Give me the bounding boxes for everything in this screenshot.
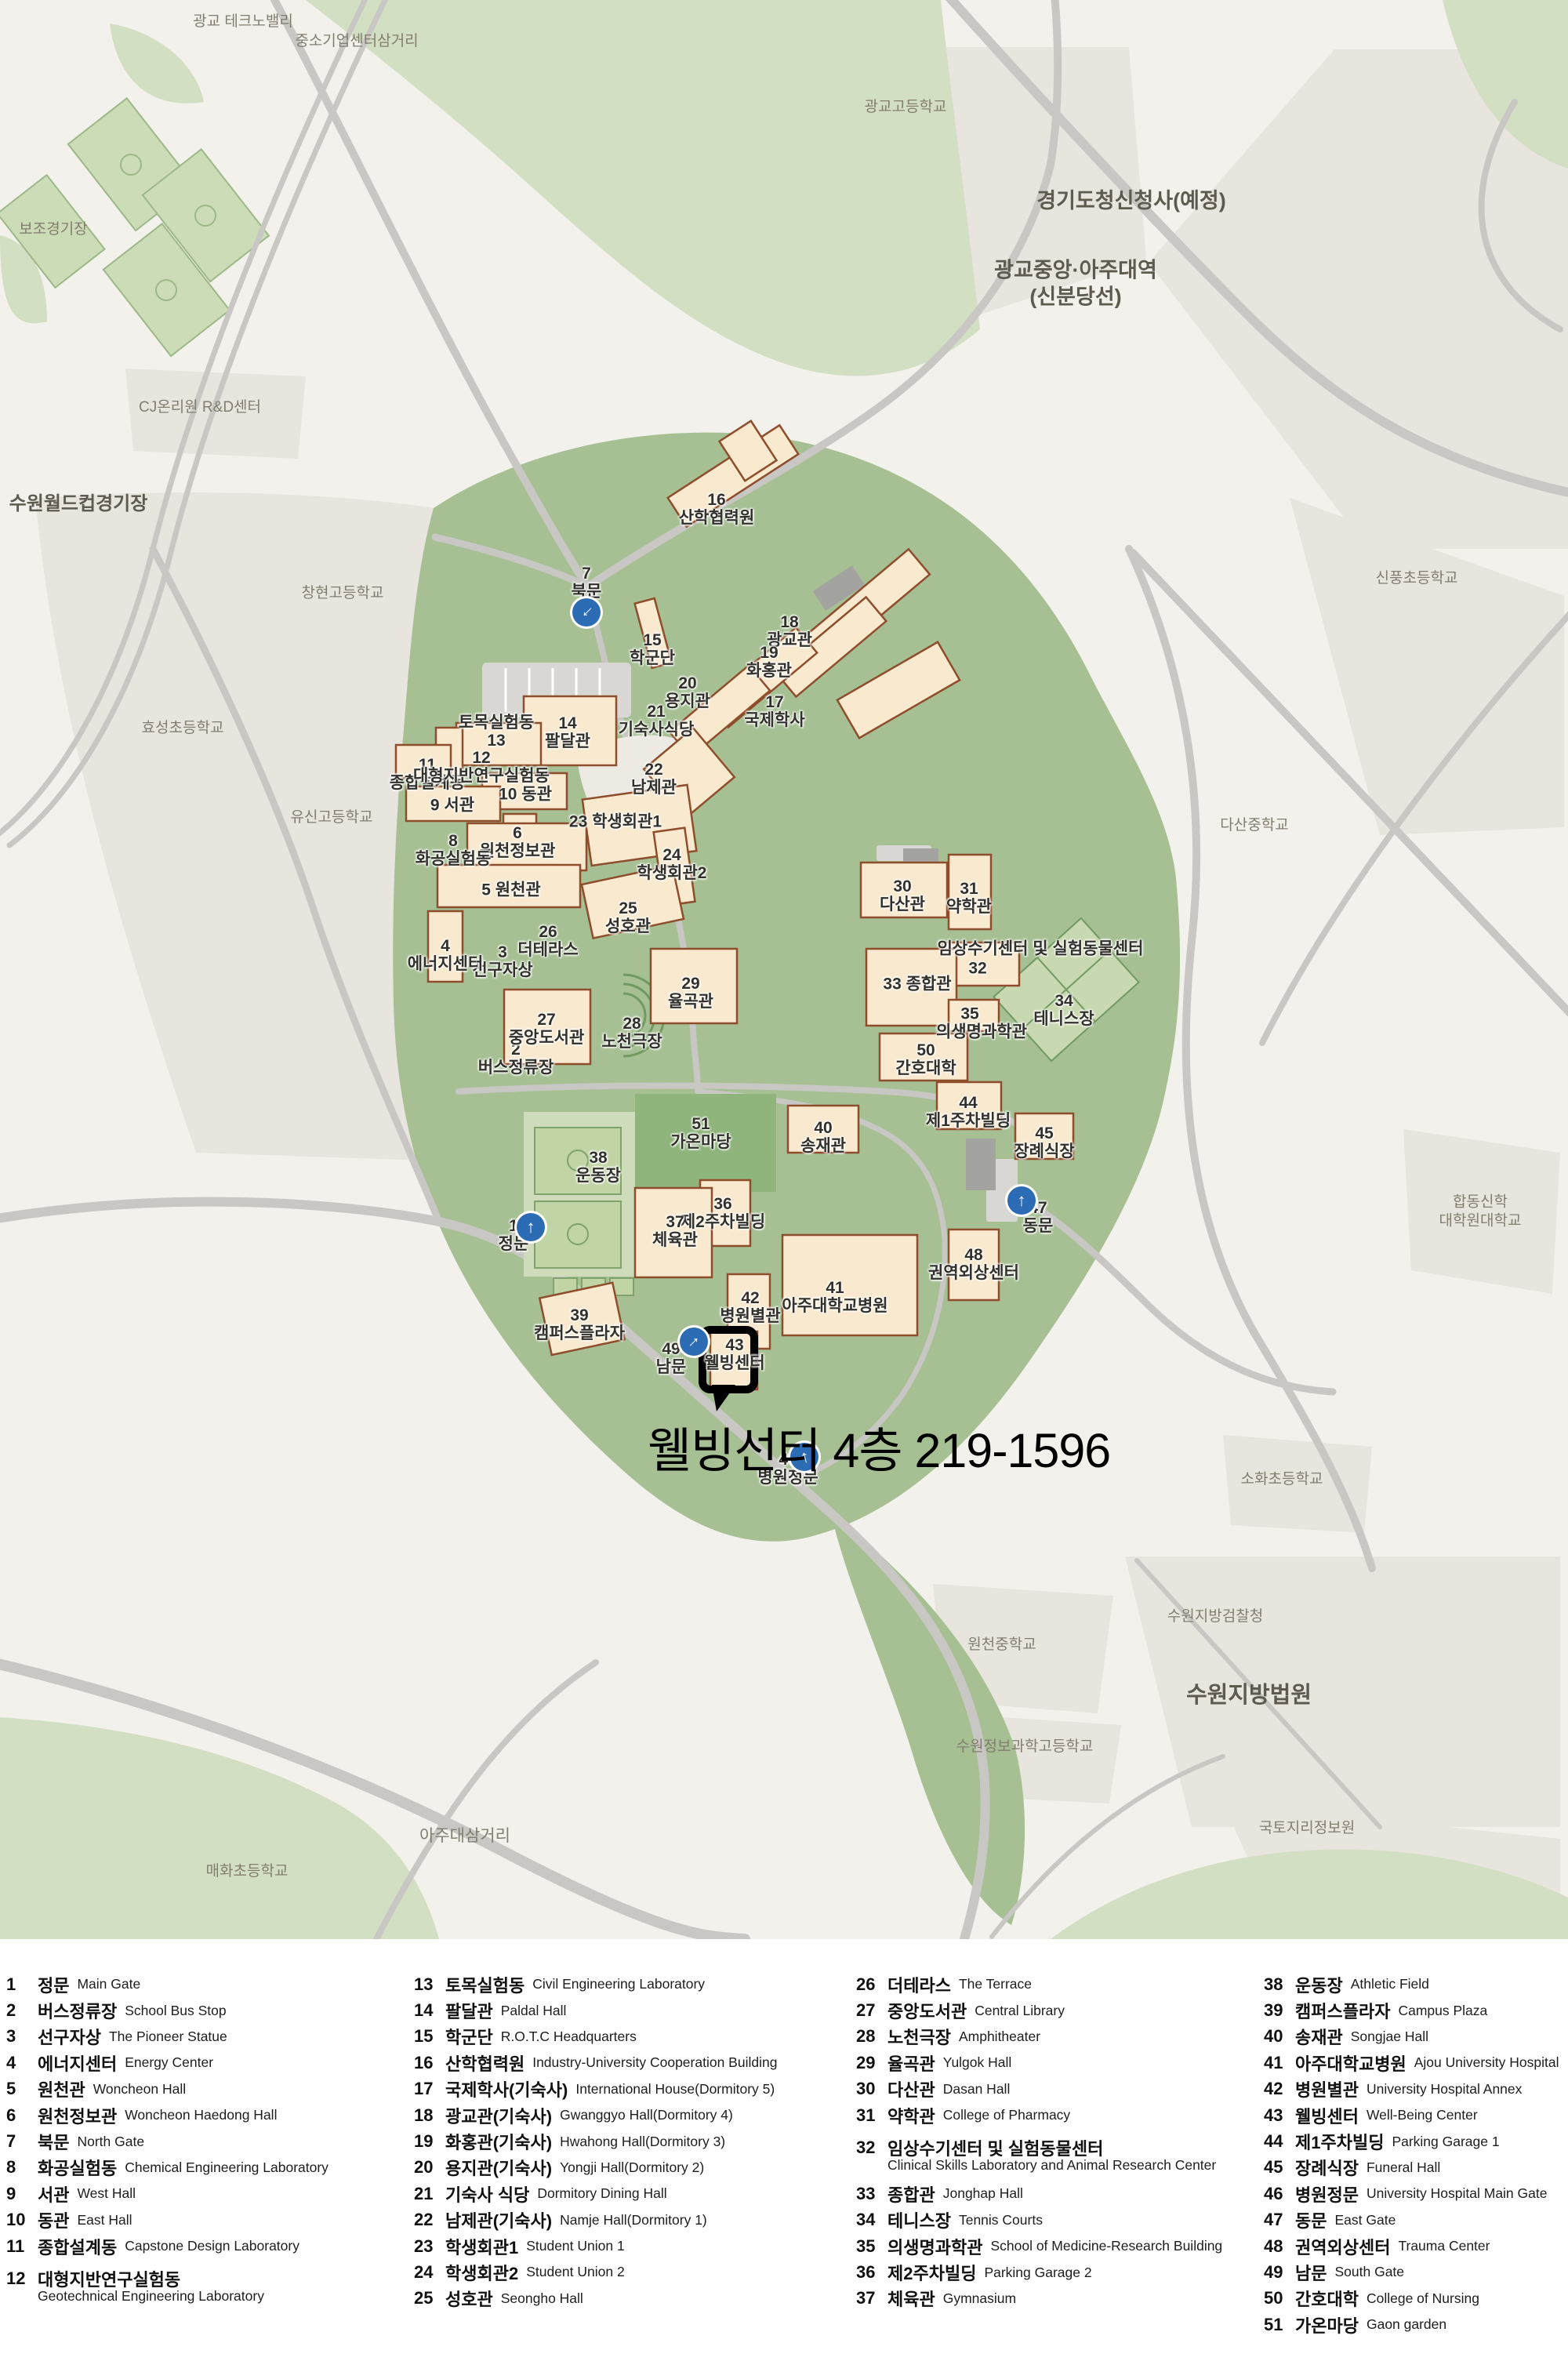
legend-item: 40송재관Songjae Hall [1264, 2024, 1559, 2050]
legend-item-korean-name: 북문 [38, 2129, 69, 2154]
legend-item-english-name: Namje Hall(Dormitory 1) [560, 2212, 707, 2228]
legend-item-korean-name: 화공실험동 [38, 2155, 117, 2180]
legend-item-number: 4 [6, 2053, 38, 2073]
legend-item-english-name: College of Pharmacy [943, 2107, 1070, 2123]
legend-item-number: 23 [414, 2236, 445, 2257]
map-building-label: 토목실험동13 [459, 714, 535, 750]
legend-item-korean-name: 광교관(기숙사) [445, 2103, 552, 2128]
legend-item-korean-name: 선구자상 [38, 2024, 101, 2049]
map-building-label: 5 원천관 [481, 881, 540, 899]
legend-item: 11종합설계동Capstone Design Laboratory [6, 2233, 446, 2259]
legend-item-number: 49 [1264, 2262, 1295, 2283]
legend-item: 17국제학사(기숙사)International House(Dormitory… [414, 2076, 777, 2102]
legend-item-english-name: Central Library [975, 2003, 1065, 2019]
legend-item-korean-name: 테니스장 [887, 2207, 951, 2232]
legend-item-english-name: South Gate [1334, 2264, 1404, 2280]
map-building-label: 10 동관 [499, 785, 552, 803]
legend-item: 1정문Main Gate [6, 1971, 446, 1997]
legend-item-number: 3 [6, 2026, 38, 2047]
place-label: 광교중앙·아주대역(신분당선) [994, 257, 1157, 311]
map-building-label: 4에너지센터 [408, 937, 484, 973]
place-label: 국토지리정보원 [1259, 1819, 1355, 1838]
legend-item-number: 17 [414, 2079, 445, 2099]
legend-item-english-name: Chemical Engineering Laboratory [125, 2159, 328, 2176]
legend-item-english-name: Paldal Hall [501, 2003, 567, 2019]
legend-item-korean-name: 학생회관1 [445, 2234, 518, 2259]
place-label: 소화초등학교 [1241, 1470, 1323, 1489]
legend-item-english-name: Athletic Field [1351, 1976, 1429, 1992]
map-building-label: 14팔달관 [545, 714, 590, 750]
map-building-label: 16산학협력원 [679, 491, 755, 527]
map-building-label: 26더테라스 [517, 923, 578, 959]
gate-arrow-icon: ↑ [684, 1332, 702, 1350]
legend-item: 21기숙사 식당Dormitory Dining Hall [414, 2181, 777, 2207]
legend-item-korean-name: 국제학사(기숙사) [445, 2076, 568, 2101]
gate-arrow-icon: ↑ [527, 1219, 535, 1236]
legend-item-korean-name: 권역외상센터 [1295, 2234, 1390, 2259]
legend-item-number: 5 [6, 2079, 38, 2099]
legend-item-korean-name: 종합설계동 [38, 2234, 117, 2259]
map-building-label: 의생명과학관 [936, 1022, 1027, 1041]
map-building-label: 28노천극장 [601, 1015, 662, 1051]
place-label: CJ온리원 R&D센터 [139, 398, 261, 417]
legend-item-english-name: Industry-University Cooperation Building [532, 2054, 777, 2071]
map-building-label: 임상수기센터 및 실험동물센터 [938, 939, 1144, 957]
legend-item-korean-name: 웰빙센터 [1295, 2103, 1359, 2128]
legend-item-number: 43 [1264, 2105, 1295, 2126]
map-building-label: 42병원별관 [720, 1289, 780, 1325]
legend-item: 5원천관Woncheon Hall [6, 2076, 446, 2102]
legend-item-korean-name: 노천극장 [887, 2024, 951, 2049]
place-label: 원천중학교 [967, 1636, 1036, 1655]
map-building-label: 38운동장 [575, 1149, 621, 1185]
legend-item-korean-name: 원천관 [38, 2076, 85, 2101]
legend-item-english-name: Well-Being Center [1367, 2107, 1478, 2123]
legend-item-korean-name: 제1주차빌딩 [1295, 2129, 1384, 2154]
legend-item-number: 21 [414, 2184, 445, 2204]
map-building-label: 25성호관 [605, 899, 651, 935]
legend-item-number: 35 [856, 2236, 887, 2257]
legend-item-number: 37 [856, 2288, 887, 2308]
legend-item-number: 24 [414, 2262, 445, 2283]
legend-item-number: 16 [414, 2053, 445, 2073]
legend-item-number: 44 [1264, 2131, 1295, 2152]
legend-item-korean-name: 병원별관 [1295, 2076, 1359, 2101]
legend-item-english-name: International House(Dormitory 5) [575, 2081, 775, 2098]
legend-item-number: 19 [414, 2131, 445, 2152]
legend-item-english-name: Energy Center [125, 2054, 213, 2071]
legend-item-english-name: R.O.T.C Headquarters [501, 2029, 637, 2045]
legend-item-korean-name: 종합관 [887, 2181, 935, 2207]
legend-item: 44제1주차빌딩Parking Garage 1 [1264, 2128, 1559, 2154]
legend-item-korean-name: 동관 [38, 2207, 69, 2232]
legend-item-english-name: Yongji Hall(Dormitory 2) [560, 2159, 704, 2176]
map-building-label: 17국제학사 [744, 693, 804, 729]
legend-item: 12대형지반연구실험동Geotechnical Engineering Labo… [6, 2259, 446, 2312]
place-label: 보조경기장 [19, 220, 87, 239]
north-gate-arrow: ↑ [572, 598, 601, 627]
legend-item: 18광교관(기숙사)Gwanggyo Hall(Dormitory 4) [414, 2102, 777, 2128]
map-building-label: 27중앙도서관 [509, 1011, 585, 1047]
legend-item-english-name: Seongho Hall [501, 2290, 583, 2307]
legend-item-number: 47 [1264, 2210, 1295, 2230]
legend-item-korean-name: 기숙사 식당 [445, 2181, 529, 2207]
legend-item-english-name: Ajou University Hospital [1414, 2054, 1559, 2071]
map-building-label: 39캠퍼스플라자 [534, 1306, 625, 1342]
legend-item-korean-name: 남문 [1295, 2260, 1327, 2285]
legend-item-korean-name: 원천정보관 [38, 2103, 117, 2128]
map-building-label: 51가온마당 [670, 1115, 731, 1151]
legend-item-korean-name: 남제관(기숙사) [445, 2207, 552, 2232]
legend-item-number: 18 [414, 2105, 445, 2126]
legend-item-korean-name: 가온마당 [1295, 2312, 1359, 2337]
legend-item-english-name: Yulgok Hall [943, 2054, 1012, 2071]
legend-item: 9서관West Hall [6, 2181, 446, 2207]
legend-item-korean-name: 토목실험동 [445, 1972, 524, 1997]
legend-item-number: 32 [856, 2138, 887, 2158]
legend-item-english-name: College of Nursing [1367, 2290, 1479, 2307]
legend-item: 48권역외상센터Trauma Center [1264, 2233, 1559, 2259]
legend-item-number: 39 [1264, 2000, 1295, 2021]
legend-item-number: 33 [856, 2184, 887, 2204]
map-building-label: 9 서관 [430, 796, 474, 814]
map-building-label: 29율곡관 [668, 975, 713, 1011]
gate-arrow-icon: ↑ [1018, 1192, 1026, 1209]
legend-item: 15학군단R.O.T.C Headquarters [414, 2024, 777, 2050]
legend-item-english-name: Hwahong Hall(Dormitory 3) [560, 2134, 725, 2150]
legend-item-english-name: Campus Plaza [1398, 2003, 1487, 2019]
legend-item: 42병원별관University Hospital Annex [1264, 2076, 1559, 2102]
map-building-label: 19화홍관 [746, 644, 792, 680]
annotation-text: 웰빙선터 4층 219-1596 [648, 1411, 1110, 1481]
map-canvas [0, 0, 1568, 1939]
legend-item-korean-name: 장례식장 [1295, 2155, 1359, 2180]
campus-map: 1정문2버스정류장3선구자상4에너지센터5 원천관6원천정보관7북문8화공실험동… [0, 0, 1568, 1939]
legend-item-english-name: Capstone Design Laboratory [125, 2238, 299, 2254]
legend-item-korean-name: 아주대학교병원 [1295, 2050, 1406, 2076]
legend-item-korean-name: 화홍관(기숙사) [445, 2129, 552, 2154]
legend-item: 50간호대학College of Nursing [1264, 2286, 1559, 2312]
main-gate-arrow: ↑ [517, 1213, 545, 1241]
legend-item-english-name: Dormitory Dining Hall [537, 2185, 666, 2202]
map-building-label: 33 종합관 [883, 975, 951, 993]
legend-item-number: 9 [6, 2184, 38, 2204]
legend-column-2: 13토목실험동Civil Engineering Laboratory14팔달관… [414, 1971, 777, 2312]
legend-item-number: 10 [6, 2210, 38, 2230]
legend-item: 23학생회관1Student Union 1 [414, 2233, 777, 2259]
legend-item-english-name: Dasan Hall [943, 2081, 1011, 2098]
place-label: 신풍초등학교 [1376, 569, 1458, 588]
place-label: 합동신학대학원대학교 [1439, 1193, 1522, 1230]
map-building-label: 22남제관 [631, 761, 677, 797]
legend-item: 47동문East Gate [1264, 2207, 1559, 2233]
legend-item-english-name: Geotechnical Engineering Laboratory [38, 2288, 477, 2305]
map-building-label: 32 [968, 959, 986, 977]
legend-item-english-name: Jonghap Hall [943, 2185, 1023, 2202]
legend-item-english-name: Student Union 2 [526, 2264, 625, 2280]
legend-item-korean-name: 성호관 [445, 2286, 493, 2311]
legend-item: 22남제관(기숙사)Namje Hall(Dormitory 1) [414, 2207, 777, 2233]
legend-item-english-name: Gwanggyo Hall(Dormitory 4) [560, 2107, 733, 2123]
map-building-label: 34테니스장 [1033, 992, 1094, 1028]
legend-item: 14팔달관Paldal Hall [414, 1997, 777, 2023]
legend-item-number: 14 [414, 2000, 445, 2021]
legend-item-number: 28 [856, 2026, 887, 2047]
legend-item-korean-name: 캠퍼스플라자 [1295, 1998, 1390, 2023]
legend-item-english-name: East Hall [77, 2212, 132, 2228]
legend-item-number: 34 [856, 2210, 887, 2230]
legend-item-number: 1 [6, 1974, 38, 1995]
legend-item-korean-name: 약학관 [887, 2103, 935, 2128]
legend-item: 13토목실험동Civil Engineering Laboratory [414, 1971, 777, 1997]
legend-item: 4에너지센터Energy Center [6, 2050, 446, 2076]
map-building-label: 23 학생회관1 [569, 812, 662, 830]
legend-item-korean-name: 체육관 [887, 2286, 935, 2311]
gate-arrow-icon: ↑ [577, 603, 595, 621]
legend-item-korean-name: 송재관 [1295, 2024, 1343, 2049]
legend-item: 46병원정문University Hospital Main Gate [1264, 2181, 1559, 2207]
legend-item-number: 38 [1264, 1974, 1295, 1995]
map-building-label: 21기숙사식당 [619, 703, 695, 739]
legend-item-korean-name: 더테라스 [887, 1972, 951, 1997]
legend-item-english-name: Parking Garage 2 [984, 2265, 1091, 2281]
legend-item-korean-name: 정문 [38, 1972, 69, 1997]
place-label: 아주대삼거리 [419, 1826, 510, 1847]
legend-item-english-name: Gymnasium [943, 2290, 1016, 2307]
legend-item-english-name: University Hospital Main Gate [1367, 2185, 1548, 2202]
place-label: 수원지방법원 [1186, 1681, 1312, 1709]
legend-item-number: 8 [6, 2157, 38, 2178]
legend-item-english-name: West Hall [77, 2185, 136, 2202]
map-building-label: 45장례식장 [1014, 1124, 1074, 1161]
legend-item-english-name: Amphitheater [959, 2029, 1040, 2045]
legend-item-number: 7 [6, 2131, 38, 2152]
legend-item: 7북문North Gate [6, 2128, 446, 2154]
legend-item-english-name: Trauma Center [1398, 2238, 1490, 2254]
place-label: 경기도청신청사(예정) [1036, 188, 1226, 215]
map-building-label: 8화공실험동 [416, 832, 492, 868]
map-building-label: 7북문 [572, 565, 602, 601]
legend-item-korean-name: 에너지센터 [38, 2050, 117, 2076]
place-label: 중소기업센터삼거리 [295, 32, 418, 51]
legend-item-number: 40 [1264, 2026, 1295, 2047]
legend-item-korean-name: 중앙도서관 [887, 1998, 967, 2023]
legend-item-number: 11 [6, 2236, 38, 2257]
legend-item: 6원천정보관Woncheon Haedong Hall [6, 2102, 446, 2128]
legend-item-korean-name: 학생회관2 [445, 2260, 518, 2285]
legend-item-number: 13 [414, 1974, 445, 1995]
legend-item-korean-name: 산학협력원 [445, 2050, 524, 2076]
legend-item-number: 26 [856, 1974, 887, 1995]
legend-item-english-name: Student Union 1 [526, 2238, 625, 2254]
legend-item: 41아주대학교병원Ajou University Hospital [1264, 2050, 1559, 2076]
legend-column-4: 38운동장Athletic Field39캠퍼스플라자Campus Plaza4… [1264, 1971, 1559, 2337]
map-building-label: 44제1주차빌딩 [926, 1094, 1011, 1130]
place-label: 효성초등학교 [142, 719, 224, 738]
legend-item-number: 20 [414, 2157, 445, 2178]
place-label: 수원월드컵경기장 [9, 492, 148, 516]
legend-item-number: 6 [6, 2105, 38, 2126]
map-building-label: 48권역외상센터 [928, 1246, 1019, 1282]
legend-item-number: 41 [1264, 2053, 1295, 2073]
legend-item: 16산학협력원Industry-University Cooperation B… [414, 2050, 777, 2076]
legend-item-english-name: School of Medicine-Research Building [990, 2238, 1222, 2254]
legend-item-number: 30 [856, 2079, 887, 2099]
legend-item-english-name: East Gate [1334, 2212, 1396, 2228]
legend-item-korean-name: 팔달관 [445, 1998, 493, 2023]
legend-item-english-name: Woncheon Hall [93, 2081, 186, 2098]
legend-item-english-name: University Hospital Annex [1367, 2081, 1522, 2098]
legend-item: 38운동장Athletic Field [1264, 1971, 1559, 1997]
map-building-label: 15학군단 [630, 631, 675, 667]
map-building-label: 30다산관 [880, 877, 925, 914]
legend-item-number: 51 [1264, 2315, 1295, 2335]
place-label: 매화초등학교 [206, 1862, 289, 1881]
map-building-label: 31약학관 [946, 880, 992, 916]
legend-item: 49남문South Gate [1264, 2259, 1559, 2285]
place-label: 다산중학교 [1220, 816, 1288, 835]
map-building-label: 41아주대학교병원 [782, 1279, 887, 1315]
legend-item-number: 25 [414, 2288, 445, 2308]
place-label: 창현고등학교 [302, 584, 384, 603]
legend-item-english-name: Main Gate [77, 1976, 140, 1992]
legend-item-korean-name: 용지관(기숙사) [445, 2155, 552, 2180]
legend-item: 3선구자상The Pioneer Statue [6, 2024, 446, 2050]
legend-item-english-name: The Terrace [959, 1976, 1032, 1992]
place-label: 유신고등학교 [291, 808, 373, 827]
legend-item-number: 42 [1264, 2079, 1295, 2099]
legend-item: 39캠퍼스플라자Campus Plaza [1264, 1997, 1559, 2023]
east-gate-arrow: ↑ [1007, 1186, 1036, 1215]
legend-item-english-name: Gaon garden [1367, 2316, 1446, 2333]
legend-item-number: 27 [856, 2000, 887, 2021]
legend-item: 20용지관(기숙사)Yongji Hall(Dormitory 2) [414, 2155, 777, 2181]
legend-item-korean-name: 동문 [1295, 2207, 1327, 2232]
legend-item-number: 12 [6, 2268, 38, 2289]
map-building-label: 37체육관 [652, 1213, 698, 1249]
legend-item-korean-name: 의생명과학관 [887, 2234, 982, 2259]
legend-item-number: 29 [856, 2053, 887, 2073]
legend-item: 51가온마당Gaon garden [1264, 2312, 1559, 2337]
legend-item-korean-name: 서관 [38, 2181, 69, 2207]
legend-item-number: 15 [414, 2026, 445, 2047]
legend-item: 25성호관Seongho Hall [414, 2286, 777, 2312]
legend-item-english-name: The Pioneer Statue [109, 2029, 227, 2045]
legend-item-english-name: Parking Garage 1 [1392, 2134, 1499, 2150]
legend-item-number: 31 [856, 2105, 887, 2126]
place-label: 수원정보과학고등학교 [956, 1738, 1094, 1756]
legend-item: 45장례식장Funeral Hall [1264, 2155, 1559, 2181]
campus-map-screenshot: 1정문2버스정류장3선구자상4에너지센터5 원천관6원천정보관7북문8화공실험동… [0, 0, 1568, 2361]
map-building-label: 43웰빙센터 [704, 1336, 764, 1372]
place-label: 광교 테크노밸리 [193, 13, 293, 31]
legend-item-english-name: School Bus Stop [125, 2003, 226, 2019]
legend-item-korean-name: 다산관 [887, 2076, 935, 2101]
map-building-label: 50간호대학 [895, 1041, 956, 1077]
legend-item-number: 2 [6, 2000, 38, 2021]
legend-item-korean-name: 학군단 [445, 2024, 493, 2049]
legend-item: 43웰빙센터Well-Being Center [1264, 2102, 1559, 2128]
map-building-label: 12대형지반연구실험동 [413, 749, 550, 785]
legend-item-korean-name: 율곡관 [887, 2050, 935, 2076]
legend-item-korean-name: 병원정문 [1295, 2181, 1359, 2207]
legend-item-number: 22 [414, 2210, 445, 2230]
map-building-label: 40송재관 [800, 1119, 846, 1155]
map-building-label: 24학생회관2 [637, 846, 707, 882]
legend-item-number: 36 [856, 2262, 887, 2283]
legend-item: 2버스정류장School Bus Stop [6, 1997, 446, 2023]
legend: 1정문Main Gate2버스정류장School Bus Stop3선구자상Th… [0, 1957, 1568, 2361]
legend-item-english-name: Tennis Courts [959, 2212, 1043, 2228]
legend-item-korean-name: 버스정류장 [38, 1998, 117, 2023]
legend-item-english-name: North Gate [77, 2134, 144, 2150]
legend-item-english-name: Songjae Hall [1351, 2029, 1428, 2045]
place-label: 수원지방검찰청 [1167, 1607, 1263, 1626]
legend-item: 19화홍관(기숙사)Hwahong Hall(Dormitory 3) [414, 2128, 777, 2154]
legend-item-korean-name: 운동장 [1295, 1972, 1343, 1997]
legend-item-english-name: Funeral Hall [1367, 2159, 1440, 2176]
legend-item-number: 46 [1264, 2184, 1295, 2204]
legend-item: 10동관East Hall [6, 2207, 446, 2233]
place-label: 광교고등학교 [865, 98, 947, 117]
map-building-label: 35 [960, 1004, 978, 1022]
legend-item-korean-name: 간호대학 [1295, 2286, 1359, 2311]
legend-item: 24학생회관2Student Union 2 [414, 2259, 777, 2285]
legend-item-english-name: Civil Engineering Laboratory [532, 1976, 705, 1992]
legend-item: 8화공실험동Chemical Engineering Laboratory [6, 2155, 446, 2181]
legend-item-number: 45 [1264, 2157, 1295, 2178]
legend-item-english-name: Woncheon Haedong Hall [125, 2107, 277, 2123]
legend-item-number: 50 [1264, 2288, 1295, 2308]
legend-item-korean-name: 제2주차빌딩 [887, 2260, 976, 2285]
legend-column-1: 1정문Main Gate2버스정류장School Bus Stop3선구자상Th… [6, 1971, 446, 2312]
south-gate-arrow: ↑ [680, 1328, 708, 1356]
legend-item-number: 48 [1264, 2236, 1295, 2257]
